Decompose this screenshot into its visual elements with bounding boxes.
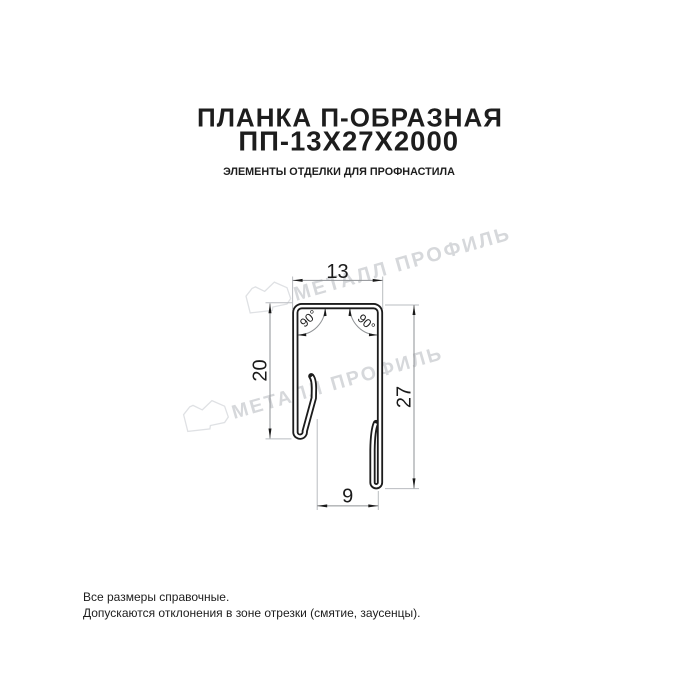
svg-text:ПП-13Х27Х2000: ПП-13Х27Х2000 bbox=[238, 125, 459, 156]
svg-text:9: 9 bbox=[342, 485, 353, 507]
svg-text:Допускаются отклонения в зоне: Допускаются отклонения в зоне отрезки (с… bbox=[83, 606, 420, 620]
svg-text:Все размеры справочные.: Все размеры справочные. bbox=[83, 590, 229, 604]
svg-text:27: 27 bbox=[394, 386, 416, 408]
svg-text:20: 20 bbox=[250, 359, 272, 381]
svg-text:ЭЛЕМЕНТЫ ОТДЕЛКИ ДЛЯ ПРОФНАСТИ: ЭЛЕМЕНТЫ ОТДЕЛКИ ДЛЯ ПРОФНАСТИЛА bbox=[223, 166, 455, 178]
svg-text:13: 13 bbox=[326, 261, 348, 283]
